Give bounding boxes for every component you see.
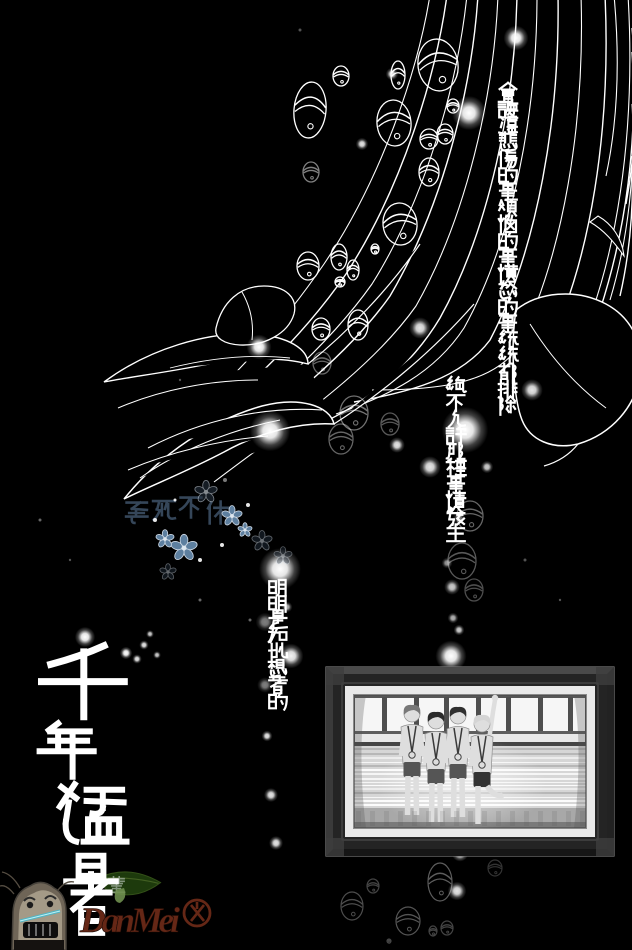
svg-text:DanMei: DanMei [79, 900, 180, 940]
